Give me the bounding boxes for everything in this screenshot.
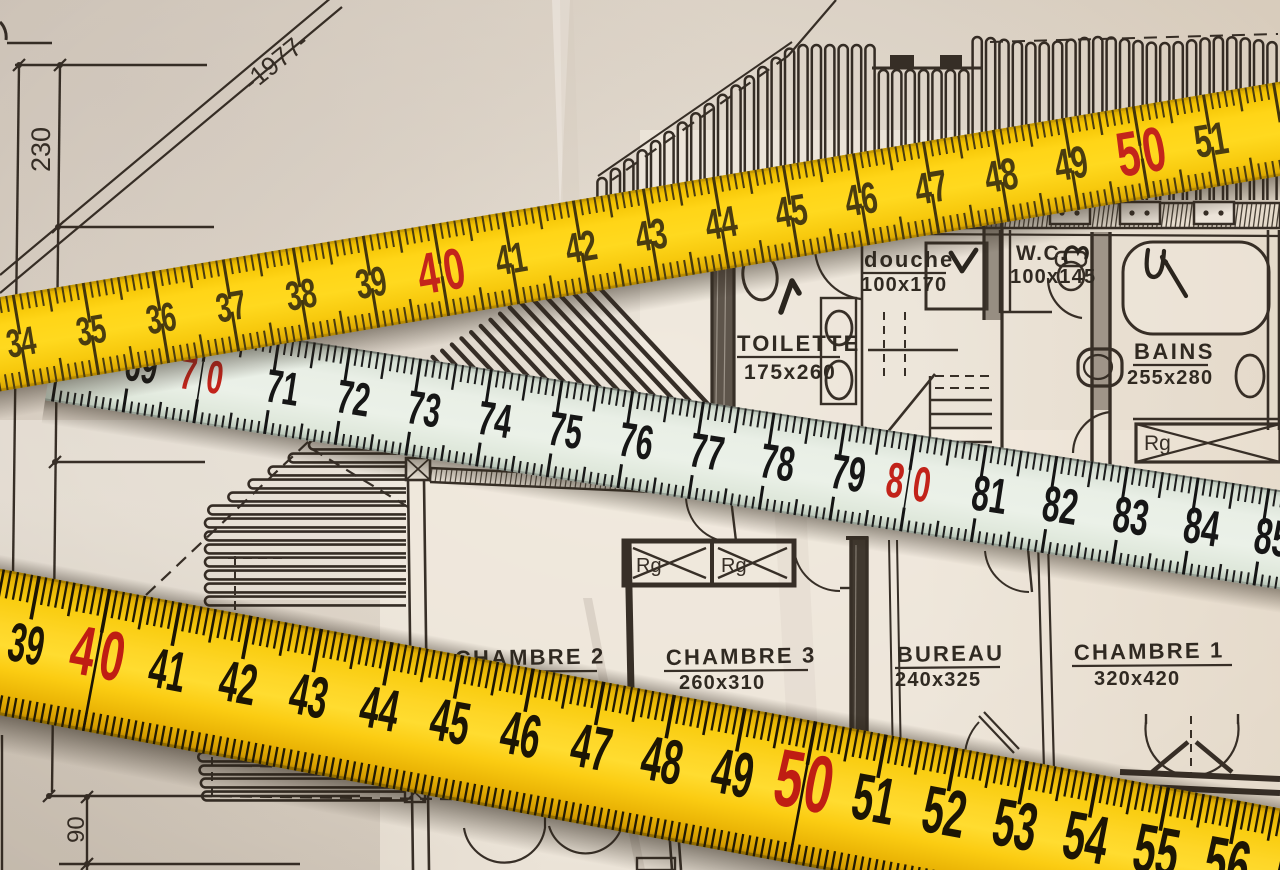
svg-text:CHAMBRE 3: CHAMBRE 3 — [666, 642, 817, 670]
svg-text:TOILETTE: TOILETTE — [737, 331, 861, 356]
svg-text:255x280: 255x280 — [1127, 367, 1213, 389]
svg-text:CHAMBRE 1: CHAMBRE 1 — [1074, 637, 1225, 665]
svg-text:Rg: Rg — [721, 555, 747, 577]
svg-text:100x145: 100x145 — [1010, 266, 1096, 288]
svg-text:90: 90 — [63, 816, 90, 843]
svg-text:320x420: 320x420 — [1094, 668, 1180, 690]
svg-text:BAINS: BAINS — [1134, 339, 1215, 364]
svg-text:240x325: 240x325 — [895, 669, 981, 691]
svg-text:BUREAU: BUREAU — [897, 640, 1005, 667]
svg-text:175x260: 175x260 — [744, 361, 836, 384]
svg-text:100x170: 100x170 — [861, 274, 947, 296]
svg-text:230: 230 — [26, 127, 56, 172]
svg-text:Rg: Rg — [1144, 432, 1171, 455]
svg-text:Rg: Rg — [636, 555, 662, 577]
